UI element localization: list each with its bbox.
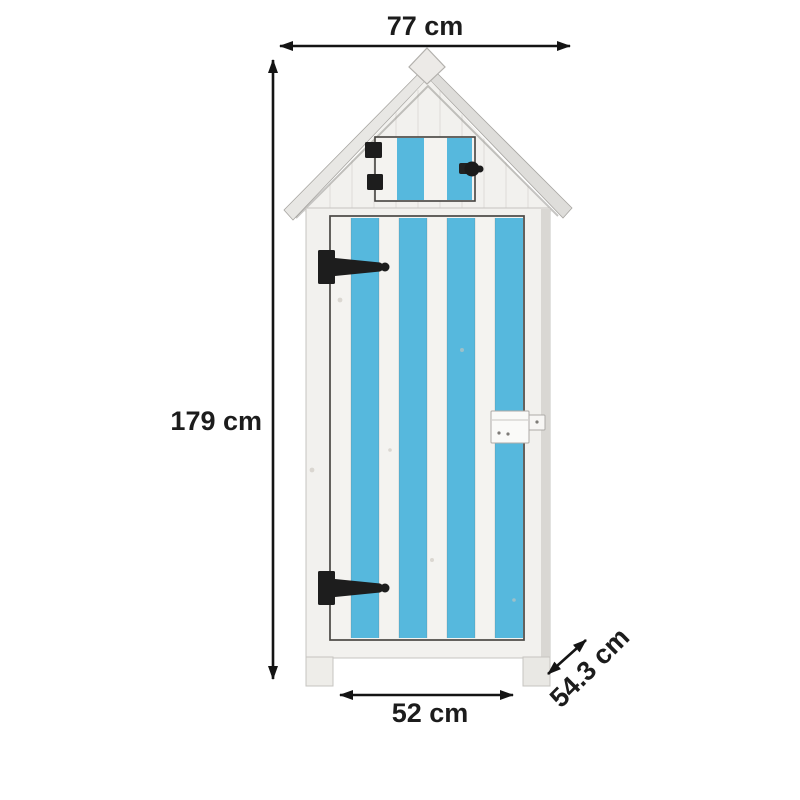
width-dimension-label: 77 cm <box>345 12 505 42</box>
product-dimension-diagram: 77 cm 179 cm 52 cm 54.3 cm <box>0 0 800 800</box>
cabinet-leg-left <box>306 657 333 686</box>
door-stripe-blue-3 <box>447 218 475 638</box>
vent-window <box>365 137 484 201</box>
door-stripe-blue-1 <box>351 218 379 638</box>
body-right-shade <box>541 209 550 657</box>
vent-stripe-blue-1 <box>397 138 424 200</box>
height-dimension-label: 179 cm <box>142 407 262 437</box>
door-stripe-blue-2 <box>399 218 427 638</box>
cabinet-leg-right <box>523 657 550 686</box>
vent-hinge-bottom <box>367 174 383 190</box>
vent-hinge-top <box>365 142 382 158</box>
door-width-dimension-label: 52 cm <box>350 699 510 729</box>
cabinet-illustration <box>0 0 800 800</box>
